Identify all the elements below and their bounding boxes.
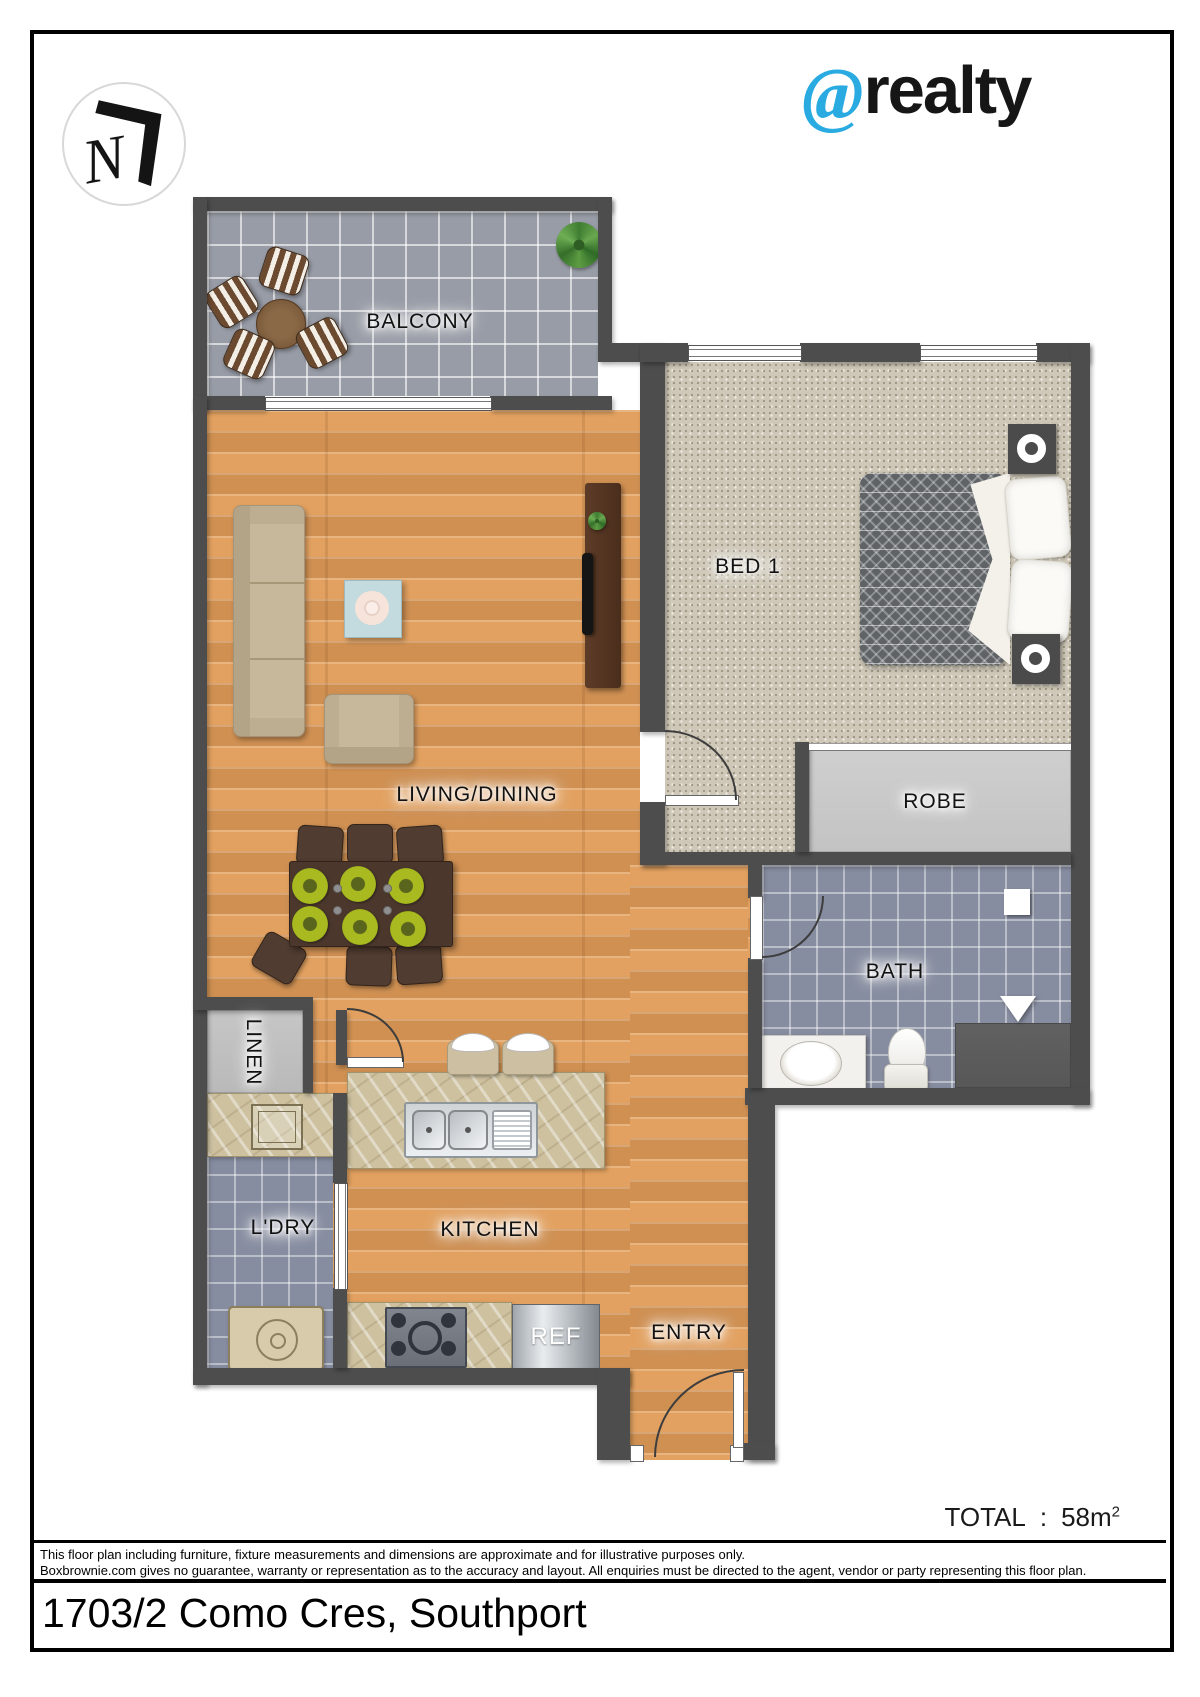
divider-line [34, 1579, 1166, 1583]
divider-line [34, 1540, 1166, 1543]
property-address: 1703/2 Como Cres, Southport [42, 1590, 587, 1637]
disclaimer-line-2: Boxbrownie.com gives no guarantee, warra… [40, 1563, 1086, 1578]
floor-plan-page: N @realty [0, 0, 1200, 1697]
page-border [30, 30, 1174, 1652]
disclaimer-line-1: This floor plan including furniture, fix… [40, 1547, 745, 1562]
